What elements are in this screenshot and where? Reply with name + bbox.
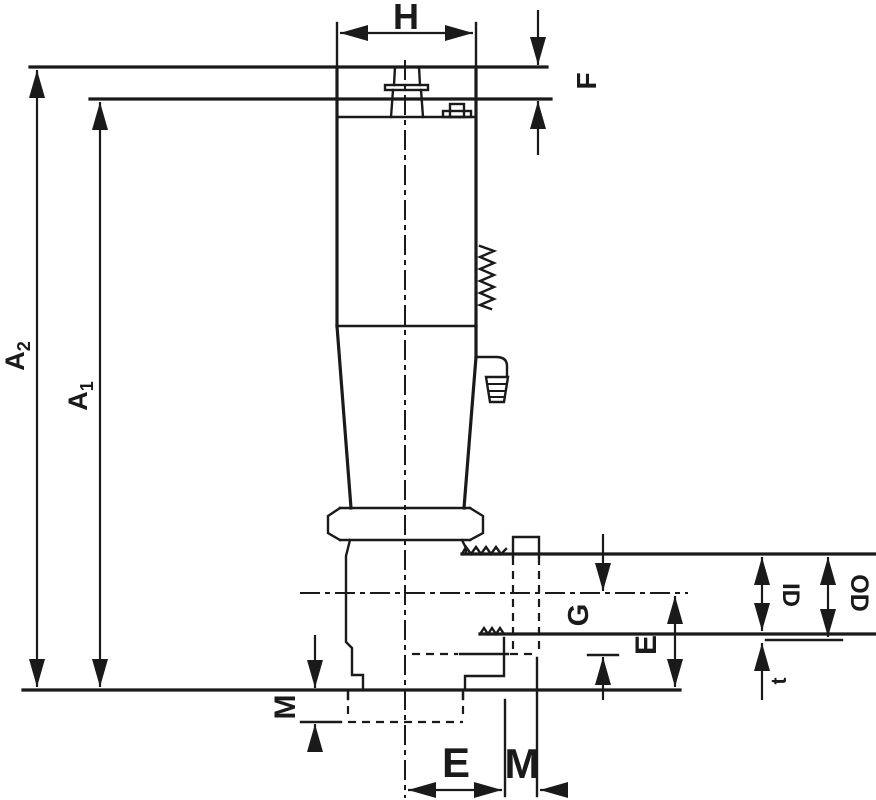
label-a1: A1: [63, 381, 97, 411]
spring-coil-detail: [480, 246, 494, 309]
label-id: ID: [777, 583, 804, 607]
label-h: H: [393, 0, 419, 37]
label-m-left: M: [269, 695, 302, 720]
test-lever-detail: [476, 357, 508, 402]
part-outline: [23, 23, 876, 796]
label-e-bottom: E: [442, 739, 470, 786]
knob-cap: [394, 67, 420, 85]
label-f: F: [571, 72, 602, 89]
label-a2: A2: [0, 341, 34, 371]
label-e-right: E: [630, 635, 663, 655]
dimension-lines: [37, 10, 828, 790]
label-m-bottom: M: [505, 740, 540, 787]
label-t: t: [768, 678, 791, 685]
label-g: G: [563, 604, 595, 627]
technical-drawing: H A2 A1 F M G E ID OD t E M: [0, 0, 876, 800]
label-od: OD: [845, 574, 873, 612]
drawing-canvas: H A2 A1 F M G E ID OD t E M: [0, 0, 876, 800]
hidden-lines: [348, 557, 539, 722]
centerlines: [300, 60, 688, 798]
